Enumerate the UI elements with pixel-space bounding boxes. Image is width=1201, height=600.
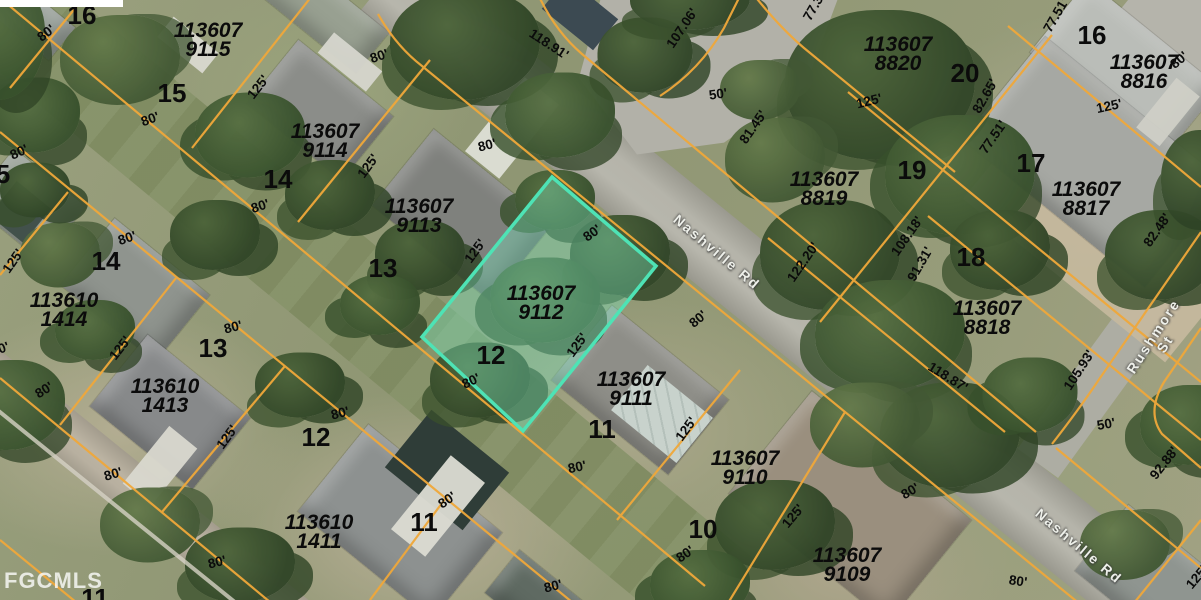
dimension-label: 77.51' <box>977 118 1009 156</box>
lot-number-label: 12 <box>302 425 331 449</box>
dimension-label: 80' <box>1008 573 1028 588</box>
dimension-label: 125' <box>214 423 240 451</box>
parcel-id-label: 113607 9114 <box>291 122 360 160</box>
dimension-label: 80' <box>0 340 11 358</box>
aerial-parcel-map[interactable]: 113607 9115113607 9114113607 9113113607 … <box>0 0 1201 600</box>
dimension-label: 80' <box>460 371 482 391</box>
lot-number-label: 12 <box>477 343 506 367</box>
map-labels: 113607 9115113607 9114113607 9113113607 … <box>0 0 1201 600</box>
dimension-label: 82.48' <box>1141 211 1173 249</box>
dimension-label: 80' <box>477 136 498 153</box>
parcel-id-label: 113607 8819 <box>790 170 859 208</box>
dimension-label: 80' <box>139 110 161 128</box>
parcel-id-label: 113607 8817 <box>1052 180 1121 218</box>
lot-number-label: 5 <box>0 162 10 186</box>
lot-number-label: 13 <box>199 336 228 360</box>
street-name-label: Nashville Rd <box>671 212 763 292</box>
dimension-label: 80' <box>249 197 270 215</box>
dimension-label: 50' <box>708 86 728 101</box>
dimension-label: 81.45' <box>737 108 769 146</box>
parcel-id-label: 113607 9110 <box>711 449 780 487</box>
dimension-label: 91.31' <box>905 245 935 284</box>
dimension-label: 125' <box>0 247 25 276</box>
dimension-label: 80' <box>436 490 458 511</box>
dimension-label: 105.93' <box>1061 348 1096 392</box>
dimension-label: 80' <box>102 465 123 483</box>
parcel-id-label: 113610 1411 <box>285 513 354 551</box>
dimension-label: 80' <box>368 47 389 65</box>
dimension-label: 80' <box>687 308 709 330</box>
dimension-label: 50' <box>1096 416 1116 432</box>
dimension-label: 80' <box>33 380 55 401</box>
lot-number-label: 15 <box>158 81 187 105</box>
dimension-label: 80' <box>223 318 244 335</box>
dimension-label: 125' <box>780 502 807 530</box>
dimension-label: 92.88' <box>1147 444 1180 481</box>
dimension-label: 77.3 <box>801 0 825 23</box>
dimension-label: 80' <box>899 481 921 501</box>
parcel-id-label: 113607 9113 <box>385 197 454 235</box>
dimension-label: 125' <box>107 334 133 362</box>
lot-number-label: 17 <box>1017 151 1046 175</box>
dimension-label: 107.06' <box>664 6 700 50</box>
lot-number-label: 13 <box>369 256 398 280</box>
dimension-label: 77.51' <box>1041 0 1071 34</box>
dimension-label: 118.87' <box>926 360 970 394</box>
dimension-label: 125' <box>1184 563 1201 591</box>
lot-number-label: 14 <box>92 249 121 273</box>
lot-number-label: 19 <box>898 158 927 182</box>
dimension-label: 80' <box>116 229 137 247</box>
lot-number-label: 11 <box>588 417 616 441</box>
watermark: FGCMLS <box>4 570 103 592</box>
dimension-label: 125' <box>1095 97 1123 115</box>
dimension-label: 80' <box>543 577 564 594</box>
dimension-label: 80' <box>581 222 603 243</box>
street-name-label: Rushmore St <box>1124 297 1194 384</box>
lot-number-label: 14 <box>264 167 293 191</box>
lot-number-label: 10 <box>689 517 718 541</box>
lot-number-label: 18 <box>957 245 986 269</box>
parcel-id-label: 113610 1414 <box>30 291 99 329</box>
dimension-label: 80' <box>567 459 588 476</box>
parcel-id-label: 113607 9109 <box>813 546 882 584</box>
parcel-id-label: 113607 9112 <box>507 284 576 322</box>
lot-number-label: 16 <box>1078 23 1107 47</box>
top-left-white-strip <box>0 0 123 7</box>
dimension-label: 80' <box>674 544 696 565</box>
parcel-id-label: 113607 9115 <box>174 21 243 59</box>
dimension-label: 122.20' <box>785 240 821 284</box>
dimension-label: 80' <box>207 553 228 570</box>
dimension-label: 80' <box>35 22 57 43</box>
parcel-id-label: 113607 9111 <box>597 370 666 408</box>
dimension-label: 80' <box>8 142 30 161</box>
dimension-label: 125' <box>462 237 488 265</box>
lot-number-label: 20 <box>951 61 980 85</box>
parcel-id-label: 113607 8818 <box>953 299 1022 337</box>
parcel-id-label: 113607 8820 <box>864 35 933 73</box>
dimension-label: 125' <box>855 92 883 111</box>
dimension-label: 125' <box>564 331 590 359</box>
parcel-id-label: 113610 1413 <box>131 377 200 415</box>
dimension-label: 80' <box>330 404 351 421</box>
street-name-label: Nashville Rd <box>1033 506 1125 586</box>
dimension-label: 125' <box>245 73 271 101</box>
lot-number-label: 11 <box>410 510 438 534</box>
dimension-label: 125' <box>673 415 699 443</box>
dimension-label: 118.91' <box>527 27 571 62</box>
